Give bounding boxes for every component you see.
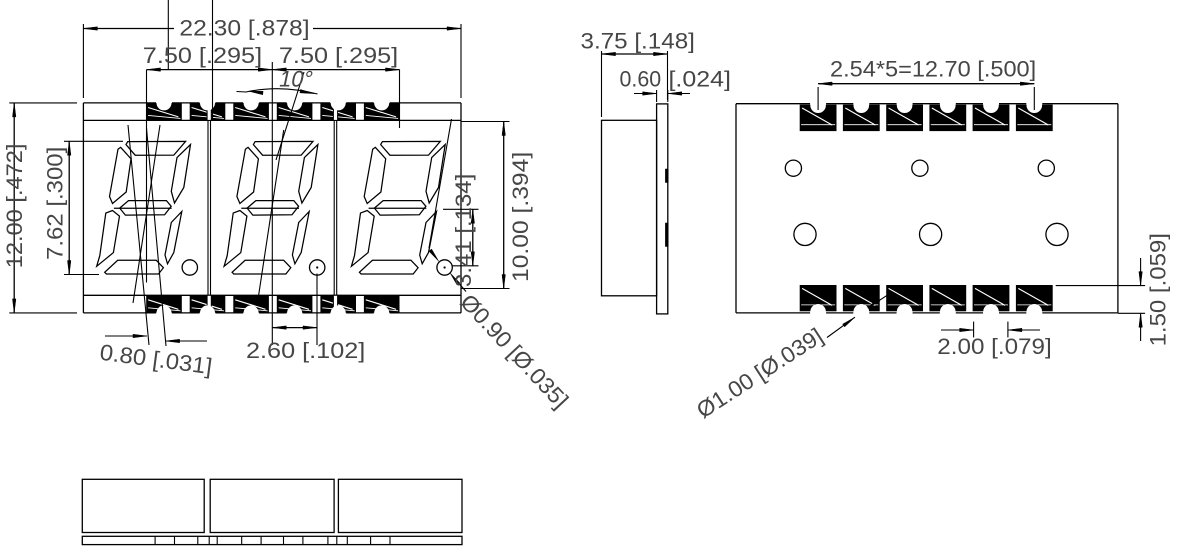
svg-text:3.41 [.134]: 3.41 [.134] xyxy=(451,174,476,287)
svg-text:2.60 [.102]: 2.60 [.102] xyxy=(246,338,365,363)
svg-text:2.54*5=12.70 [.500]: 2.54*5=12.70 [.500] xyxy=(830,57,1036,82)
svg-text:[.024]: [.024] xyxy=(669,67,731,92)
svg-text:2.00 [.079]: 2.00 [.079] xyxy=(937,334,1051,359)
svg-text:3.75 [.148]: 3.75 [.148] xyxy=(581,29,695,54)
svg-text:0.60: 0.60 xyxy=(620,67,662,92)
svg-text:7.62 [.300]: 7.62 [.300] xyxy=(43,147,68,260)
svg-text:1.50 [.059]: 1.50 [.059] xyxy=(1146,233,1171,346)
svg-text:22.30 [.878]: 22.30 [.878] xyxy=(179,16,309,41)
svg-text:7.50 [.295]: 7.50 [.295] xyxy=(279,43,398,68)
svg-text:10°: 10° xyxy=(277,66,315,92)
svg-text:12.00 [.472]: 12.00 [.472] xyxy=(2,143,27,268)
svg-text:7.50 [.295]: 7.50 [.295] xyxy=(143,43,262,68)
svg-text:10.00 [.394]: 10.00 [.394] xyxy=(508,152,533,282)
